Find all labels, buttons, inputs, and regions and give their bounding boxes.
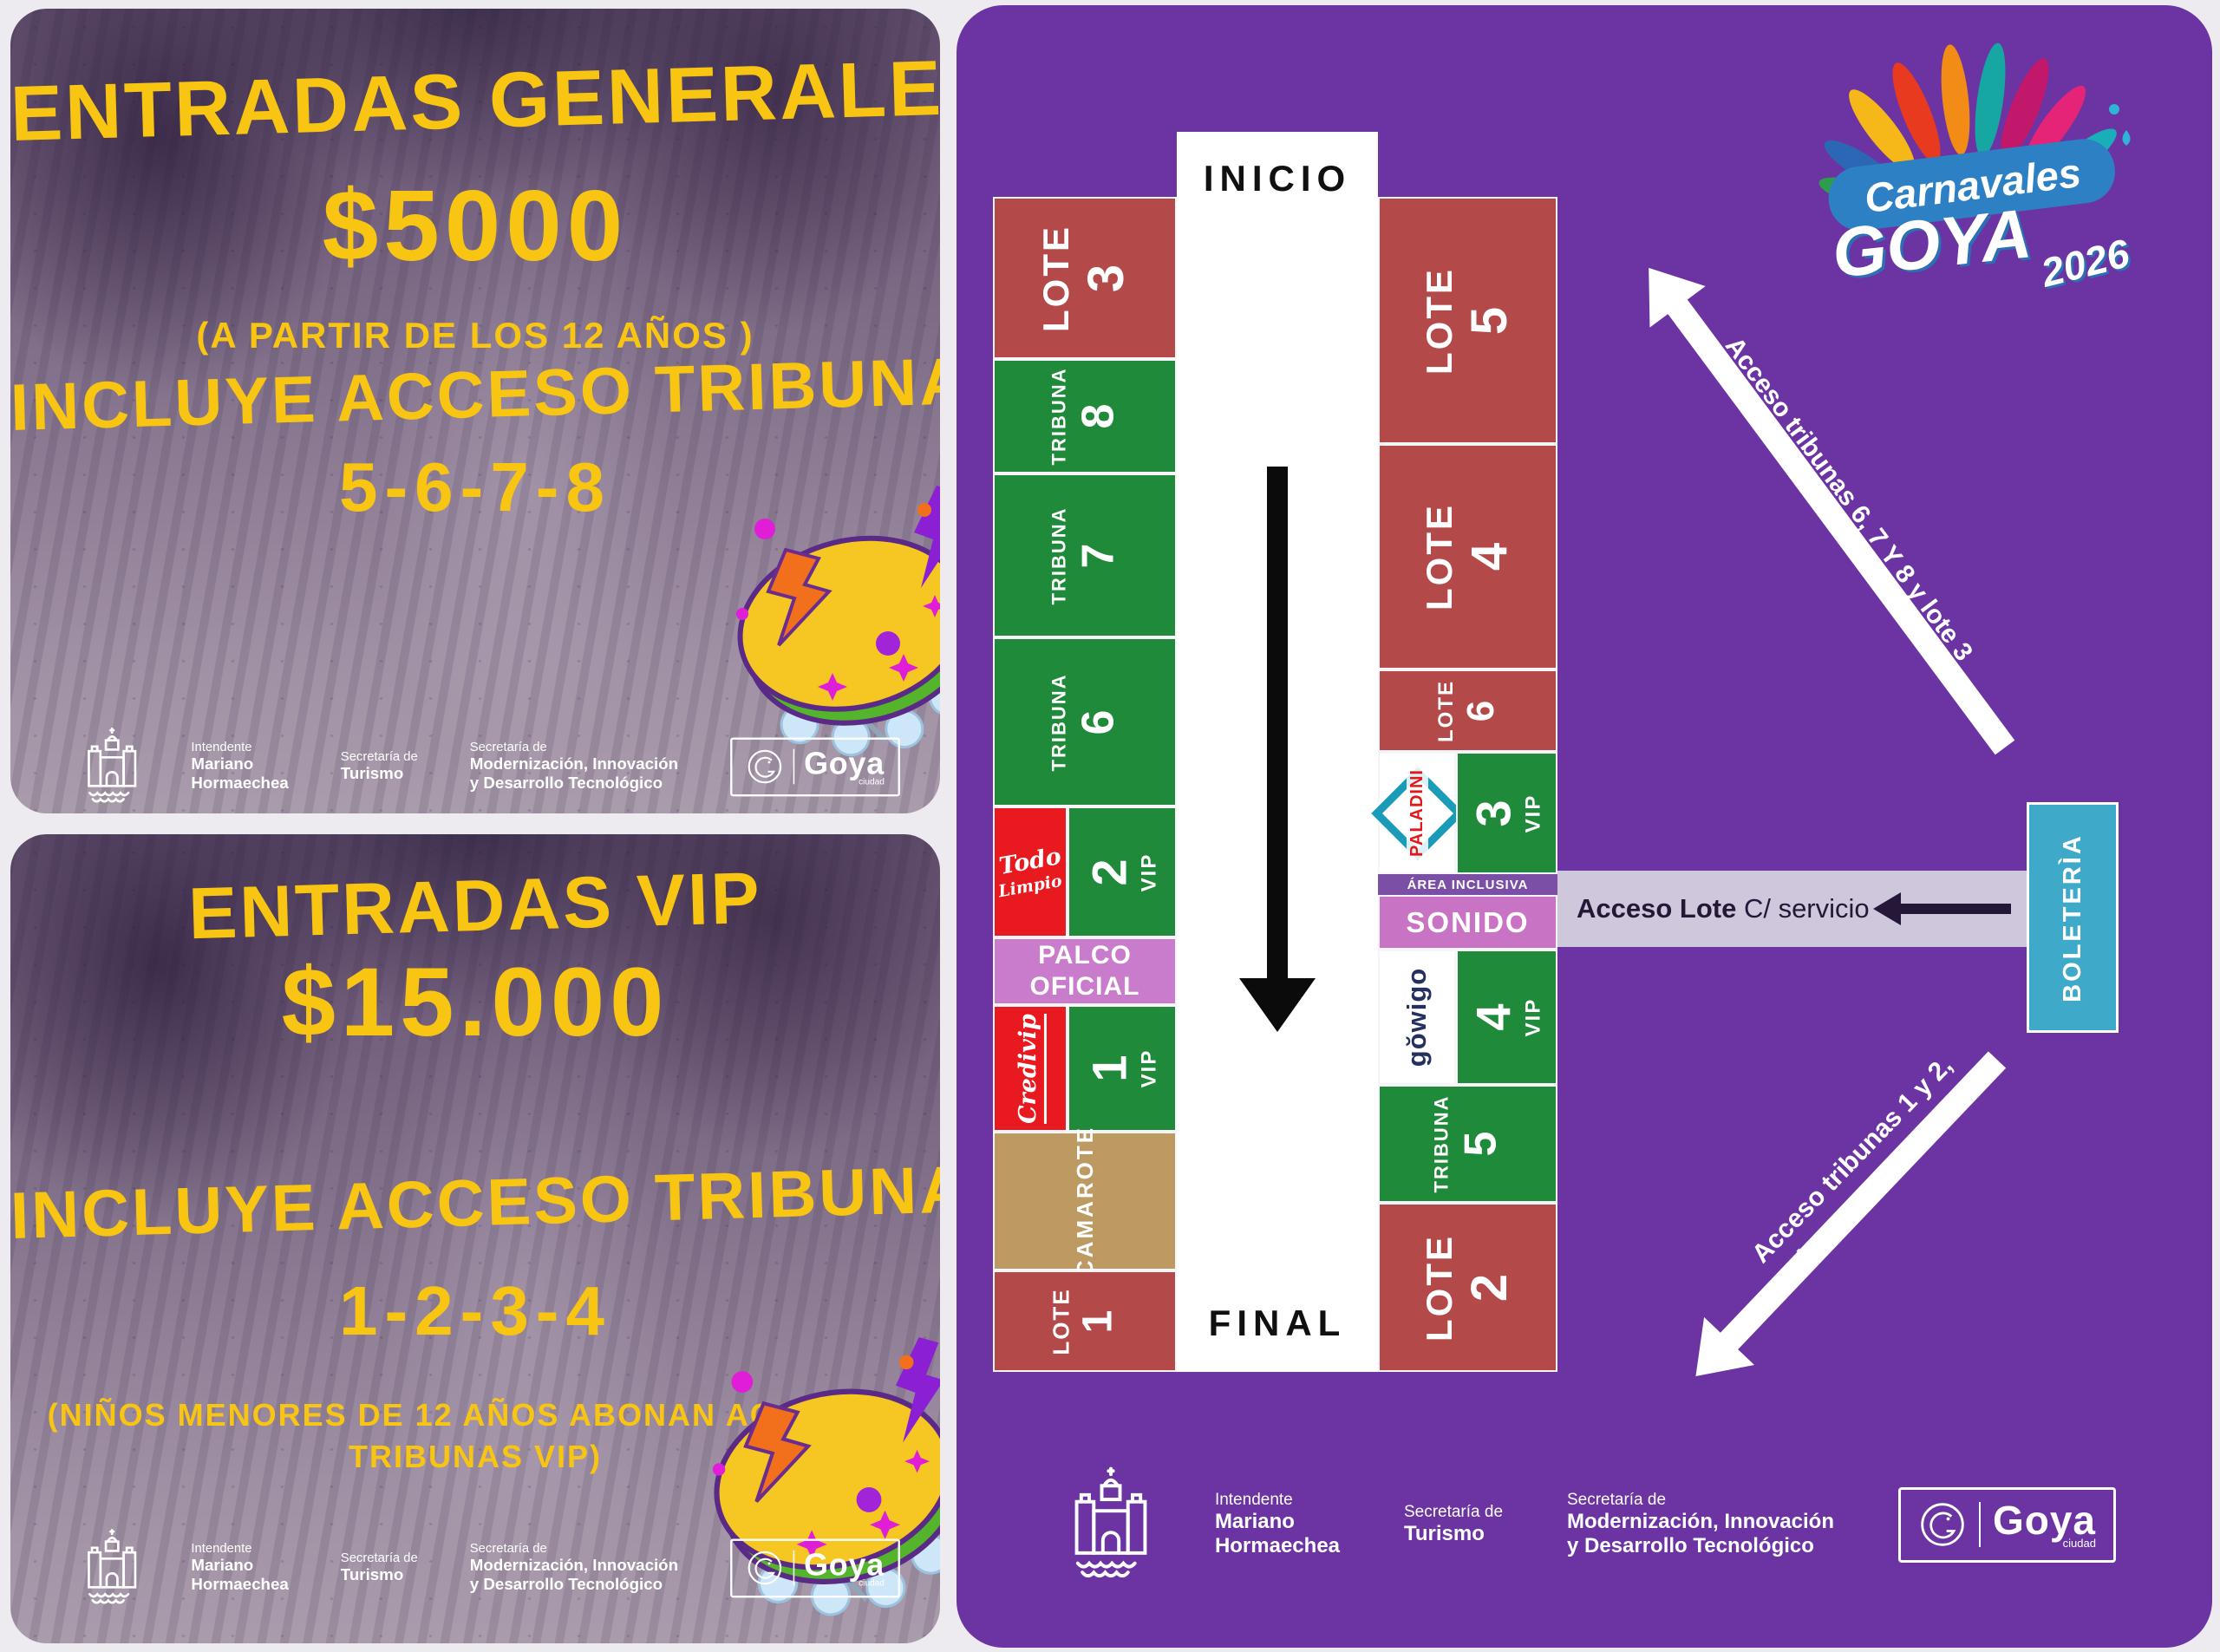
- corridor-label: Acceso Lote C/ servicio: [1577, 893, 1870, 924]
- secretaria-turismo: Secretaría de Turismo: [341, 1551, 418, 1584]
- secretaria-turismo: Secretaría de Turismo: [341, 749, 418, 783]
- tribuna-7-word: TRIBUNA: [1049, 506, 1068, 604]
- block-tribuna-5: TRIBUNA5: [1378, 1085, 1557, 1203]
- block-tribuna-7: TRIBUNA7: [993, 473, 1177, 637]
- modernizacion-name-1: Modernización, Innovación: [1567, 1510, 1834, 1534]
- turismo-name: Turismo: [1404, 1522, 1503, 1546]
- municipality-church-icon: [85, 727, 139, 806]
- block-lote-1: LOTE1: [993, 1270, 1177, 1372]
- tribuna-3-num: 3: [1470, 800, 1518, 826]
- lote-1-num: 1: [1078, 1309, 1120, 1333]
- goya-divider: [1979, 1502, 1981, 1547]
- vip-price: $15.000: [10, 954, 940, 1051]
- intendente-name-1: Mariano: [1215, 1510, 1340, 1534]
- intendente-label: Intendente: [191, 1541, 288, 1556]
- goya-divider: [793, 1551, 795, 1586]
- lote-5-word: LOTE: [1421, 267, 1458, 375]
- area-inclusiva-label: ÁREA INCLUSIVA: [1407, 878, 1529, 892]
- goya-ciudad-logo: Goya ciudad: [730, 1538, 900, 1597]
- tribuna-5-num: 5: [1459, 1132, 1504, 1157]
- gov-footer-vip: Intendente Mariano Hormaechea Secretaría…: [85, 1528, 900, 1608]
- corridor-left-arrow: [1899, 904, 2011, 914]
- poster-entradas-generales: ENTRADAS GENERALES $5000 (A PARTIR DE LO…: [10, 9, 940, 813]
- vip-title: ENTRADAS VIP: [10, 856, 940, 955]
- lote-4-num: 4: [1465, 543, 1515, 571]
- modernizacion-name-1: Modernización, Innovación: [470, 755, 678, 774]
- block-tribuna-4-vip: 4VIP: [1456, 950, 1557, 1085]
- corridor-label-bold: Acceso Lote: [1577, 893, 1736, 924]
- intendente-signature: Intendente Mariano Hormaechea: [1215, 1491, 1340, 1559]
- lote-6-word: LOTE: [1436, 680, 1457, 742]
- turismo-label: Secretaría de: [341, 749, 418, 764]
- sponsor-todo-limpio: Todo Limpio: [993, 806, 1068, 937]
- lote-6-num: 6: [1462, 700, 1500, 721]
- block-tribuna-2-vip: 2VIP: [1068, 806, 1177, 937]
- vip-subtitle: INCLUYE ACCESO TRIBUNAS: [10, 1158, 940, 1250]
- sponsor-gowigo: gŏwigo: [1378, 950, 1456, 1085]
- map-inicio-label: INICIO: [1177, 158, 1378, 199]
- block-tribuna-6: TRIBUNA6: [993, 637, 1177, 806]
- goya-g-icon: [1918, 1500, 1967, 1549]
- lote-3-num: 3: [1081, 264, 1132, 291]
- block-camarote: CAMAROTE: [993, 1132, 1177, 1270]
- secretaria-modernizacion: Secretaría de Modernización, Innovación …: [470, 740, 678, 793]
- block-palco-oficial: PALCO OFICIAL: [993, 937, 1177, 1005]
- brand-year: 2026: [2036, 230, 2134, 295]
- goya-divider: [793, 749, 795, 785]
- tribuna-3-vip-tag: VIP: [1524, 793, 1544, 833]
- general-subtitle: INCLUYE ACCESO TRIBUNAS: [10, 349, 940, 441]
- modernizacion-label: Secretaría de: [470, 1541, 678, 1556]
- municipality-church-icon: [1071, 1466, 1151, 1583]
- goya-g-icon: [746, 748, 784, 786]
- intendente-label: Intendente: [191, 740, 288, 754]
- parade-direction-arrowhead: [1239, 978, 1316, 1032]
- flyer-collage: ENTRADAS GENERALES $5000 (A PARTIR DE LO…: [0, 0, 2220, 1652]
- intendente-name-2: Hormaechea: [191, 774, 288, 793]
- general-title: ENTRADAS GENERALES: [10, 49, 940, 153]
- gowigo-text: gŏwigo: [1401, 968, 1433, 1067]
- lote-4-word: LOTE: [1421, 503, 1458, 611]
- tribuna-8-word: TRIBUNA: [1049, 368, 1068, 466]
- tribuna-6-word: TRIBUNA: [1049, 673, 1068, 771]
- tribuna-4-num: 4: [1470, 1003, 1518, 1030]
- lote-2-num: 2: [1465, 1273, 1515, 1301]
- lote-2-word: LOTE: [1421, 1234, 1458, 1342]
- palco-line1: PALCO: [1038, 940, 1132, 971]
- tribuna-2-num: 2: [1085, 859, 1133, 885]
- tribuna-4-vip-tag: VIP: [1524, 998, 1544, 1037]
- sponsor-paladini: PALADINI: [1378, 752, 1456, 874]
- block-tribuna-3-vip: 3VIP: [1456, 752, 1557, 874]
- block-lote-3: LOTE3: [993, 197, 1177, 359]
- tribuna-1-num: 1: [1085, 1055, 1133, 1081]
- modernizacion-name-2: y Desarrollo Tecnológico: [470, 1576, 678, 1595]
- camarote-word: CAMAROTE: [1074, 1126, 1096, 1277]
- gov-footer-map: Intendente Mariano Hormaechea Secretaría…: [1071, 1466, 2116, 1583]
- tribuna-6-num: 6: [1075, 709, 1120, 735]
- paladini-text: PALADINI: [1407, 767, 1428, 859]
- turismo-label: Secretaría de: [1404, 1503, 1503, 1522]
- block-lote-5: LOTE5: [1378, 197, 1557, 444]
- turismo-label: Secretaría de: [341, 1551, 418, 1565]
- goya-ciudad-logo: Goya ciudad: [1898, 1487, 2116, 1563]
- goya-wordmark: Goya: [804, 1549, 885, 1580]
- lote-1-word: LOTE: [1050, 1288, 1073, 1355]
- modernizacion-label: Secretaría de: [470, 740, 678, 754]
- parade-direction-arrow: [1267, 467, 1288, 980]
- modernizacion-name-1: Modernización, Innovación: [470, 1557, 678, 1576]
- tribuna-2-vip-tag: VIP: [1139, 852, 1159, 891]
- goya-wordmark: Goya: [804, 748, 885, 779]
- palco-line2: OFICIAL: [1030, 971, 1140, 1002]
- goya-ciudad-sub: ciudad: [804, 1577, 885, 1588]
- lote-5-num: 5: [1465, 306, 1515, 334]
- block-lote-2: LOTE2: [1378, 1203, 1557, 1372]
- general-price: $5000: [10, 175, 940, 276]
- credivip-text: Credivip: [1015, 1014, 1047, 1124]
- lote-3-word: LOTE: [1038, 225, 1074, 332]
- goya-ciudad-logo: Goya ciudad: [730, 737, 900, 796]
- sonido-label: SONIDO: [1406, 906, 1529, 939]
- intendente-name-2: Hormaechea: [191, 1576, 288, 1595]
- gov-footer-general: Intendente Mariano Hormaechea Secretaría…: [85, 727, 900, 806]
- map-final-label: FINAL: [1177, 1303, 1378, 1344]
- block-sonido: SONIDO: [1378, 895, 1557, 950]
- carnavales-goya-2026-logo: Carnavales GOYA GOYA 2026 2026: [1778, 26, 2168, 295]
- block-tribuna-1-vip: 1VIP: [1068, 1005, 1177, 1132]
- sponsor-credivip: Credivip: [993, 1005, 1068, 1132]
- modernizacion-name-2: y Desarrollo Tecnológico: [1567, 1534, 1834, 1558]
- acceso-lote-corridor: Acceso Lote C/ servicio: [1557, 871, 2027, 947]
- block-area-inclusiva: ÁREA INCLUSIVA: [1378, 874, 1557, 895]
- secretaria-modernizacion: Secretaría de Modernización, Innovación …: [470, 1541, 678, 1594]
- tribuna-7-num: 7: [1075, 543, 1120, 568]
- intendente-name-2: Hormaechea: [1215, 1534, 1340, 1558]
- modernizacion-name-2: y Desarrollo Tecnológico: [470, 774, 678, 793]
- goya-ciudad-sub: ciudad: [804, 776, 885, 787]
- intendente-name-1: Mariano: [191, 1557, 288, 1576]
- secretaria-turismo: Secretaría de Turismo: [1404, 1503, 1503, 1546]
- poster-entradas-vip: ENTRADAS VIP $15.000 INCLUYE ACCESO TRIB…: [10, 834, 940, 1643]
- tribuna-5-word: TRIBUNA: [1433, 1095, 1452, 1193]
- intendente-signature: Intendente Mariano Hormaechea: [191, 1541, 288, 1594]
- block-tribuna-8: TRIBUNA8: [993, 359, 1177, 473]
- turismo-name: Turismo: [341, 765, 418, 784]
- intendente-label: Intendente: [1215, 1491, 1340, 1510]
- boleteria-label: BOLETERÌA: [2060, 833, 2086, 1002]
- goya-wordmark: Goya: [1993, 1500, 2096, 1540]
- municipality-church-icon: [85, 1528, 139, 1608]
- tribuna-8-num: 8: [1075, 404, 1120, 429]
- block-lote-4: LOTE4: [1378, 444, 1557, 669]
- intendente-name-1: Mariano: [191, 755, 288, 774]
- tribuna-1-vip-tag: VIP: [1139, 1049, 1159, 1088]
- modernizacion-label: Secretaría de: [1567, 1491, 1834, 1510]
- secretaria-modernizacion: Secretaría de Modernización, Innovación …: [1567, 1491, 1834, 1559]
- intendente-signature: Intendente Mariano Hormaechea: [191, 740, 288, 793]
- corridor-label-rest: C/ servicio: [1736, 893, 1869, 924]
- boleteria-box: BOLETERÌA: [2027, 802, 2119, 1033]
- block-lote-6: LOTE6: [1378, 669, 1557, 752]
- goya-g-icon: [746, 1549, 784, 1587]
- turismo-name: Turismo: [341, 1566, 418, 1585]
